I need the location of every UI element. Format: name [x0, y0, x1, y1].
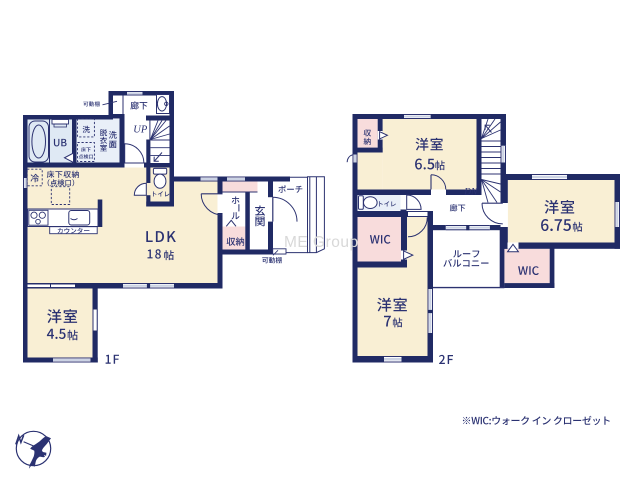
svg-text:ME Group: ME Group — [284, 234, 359, 251]
svg-text:DN: DN — [463, 188, 478, 198]
svg-text:UP: UP — [133, 124, 148, 135]
